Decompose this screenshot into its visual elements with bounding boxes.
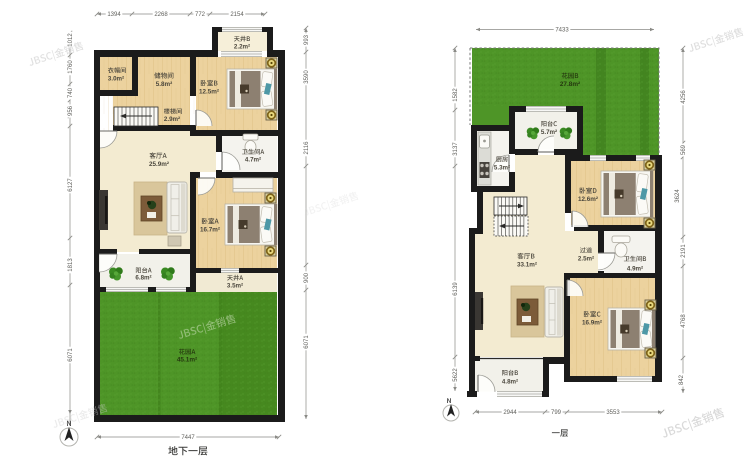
svg-text:799: 799 — [551, 410, 562, 416]
svg-text:5.7m²: 5.7m² — [541, 129, 557, 136]
svg-text:6071: 6071 — [68, 348, 74, 362]
svg-text:569: 569 — [681, 144, 687, 155]
svg-text:2.2m²: 2.2m² — [234, 44, 250, 51]
svg-text:3.0m²: 3.0m² — [108, 76, 124, 83]
svg-text:956: 956 — [68, 105, 74, 116]
svg-text:7433: 7433 — [555, 28, 569, 34]
svg-text:5622: 5622 — [453, 368, 459, 382]
svg-text:6127: 6127 — [68, 178, 74, 192]
svg-text:842: 842 — [679, 374, 685, 385]
svg-text:3590: 3590 — [304, 70, 310, 84]
svg-text:12.5m²: 12.5m² — [199, 89, 219, 96]
svg-text:2.5m²: 2.5m² — [578, 256, 594, 263]
svg-text:4.9m²: 4.9m² — [627, 266, 643, 273]
svg-text:33.1m²: 33.1m² — [517, 262, 537, 269]
svg-text:3137: 3137 — [453, 142, 459, 156]
svg-text:4.7m²: 4.7m² — [245, 157, 261, 164]
svg-text:4.8m²: 4.8m² — [502, 379, 518, 386]
svg-text:740: 740 — [68, 87, 74, 98]
svg-text:27.8m²: 27.8m² — [560, 81, 580, 88]
svg-text:2.9m²: 2.9m² — [164, 116, 180, 123]
svg-text:2116: 2116 — [304, 141, 310, 155]
svg-text:3624: 3624 — [675, 189, 681, 203]
svg-text:45.1m²: 45.1m² — [177, 357, 197, 364]
svg-text:2191: 2191 — [681, 244, 687, 258]
svg-text:25.9m²: 25.9m² — [149, 161, 169, 168]
svg-text:6.8m²: 6.8m² — [135, 275, 151, 282]
svg-text:7447: 7447 — [181, 435, 195, 441]
svg-text:16.9m²: 16.9m² — [582, 320, 602, 327]
svg-text:2268: 2268 — [154, 12, 168, 18]
svg-text:6071: 6071 — [304, 335, 310, 349]
svg-text:993: 993 — [304, 34, 310, 45]
svg-text:1582: 1582 — [453, 88, 459, 102]
svg-text:3553: 3553 — [606, 410, 620, 416]
svg-text:5.8m²: 5.8m² — [156, 81, 172, 88]
svg-text:1760: 1760 — [68, 60, 74, 74]
svg-text:1394: 1394 — [107, 12, 121, 18]
svg-text:772: 772 — [195, 12, 206, 18]
svg-text:12.6m²: 12.6m² — [578, 196, 598, 203]
svg-text:3.5m²: 3.5m² — [227, 283, 243, 290]
svg-text:900: 900 — [304, 272, 310, 283]
svg-text:16.7m²: 16.7m² — [200, 227, 220, 234]
svg-text:4768: 4768 — [681, 314, 687, 328]
svg-text:5.3m²: 5.3m² — [494, 165, 510, 172]
svg-text:6139: 6139 — [453, 282, 459, 296]
svg-text:2944: 2944 — [503, 410, 517, 416]
svg-text:4256: 4256 — [681, 90, 687, 104]
svg-text:2154: 2154 — [230, 12, 244, 18]
svg-text:1813: 1813 — [68, 258, 74, 272]
